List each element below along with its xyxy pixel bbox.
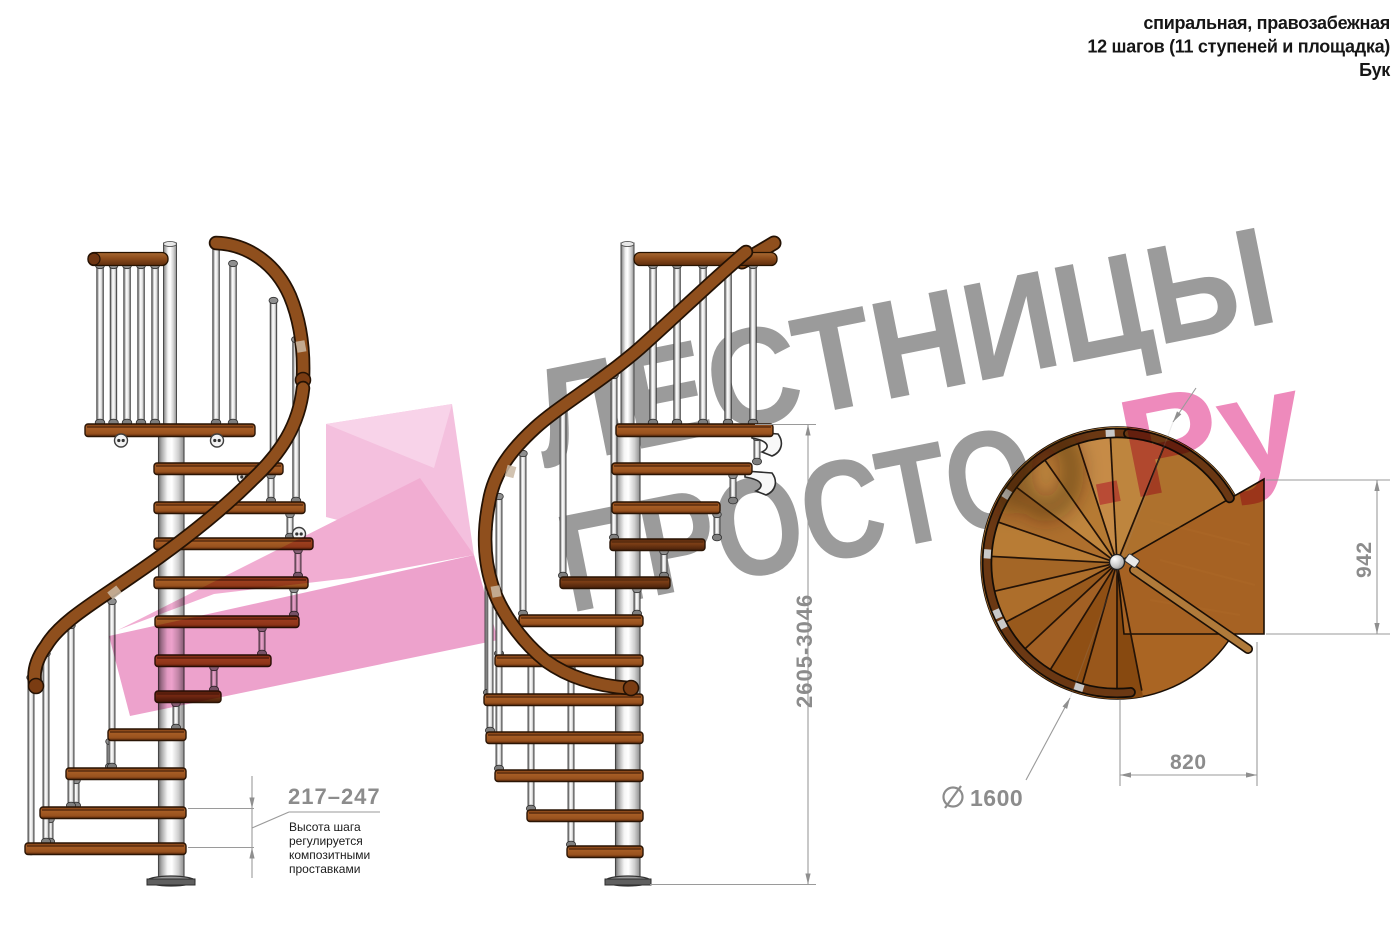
svg-text:942: 942 — [1353, 541, 1376, 578]
svg-text:композитными: композитными — [289, 848, 370, 862]
svg-text:регулируется: регулируется — [289, 834, 363, 848]
svg-text:1600: 1600 — [970, 785, 1023, 811]
svg-text:спиральная, правозабежная: спиральная, правозабежная — [1143, 13, 1390, 33]
svg-text:12 шагов (11 ступеней и площад: 12 шагов (11 ступеней и площадка) — [1087, 37, 1390, 57]
svg-text:Высота шага: Высота шага — [289, 820, 361, 834]
svg-text:2605-3046: 2605-3046 — [792, 594, 817, 708]
svg-text:проставками: проставками — [289, 862, 360, 876]
svg-text:217–247: 217–247 — [288, 784, 381, 809]
svg-text:820: 820 — [1170, 751, 1207, 774]
svg-text:Бук: Бук — [1359, 60, 1391, 80]
